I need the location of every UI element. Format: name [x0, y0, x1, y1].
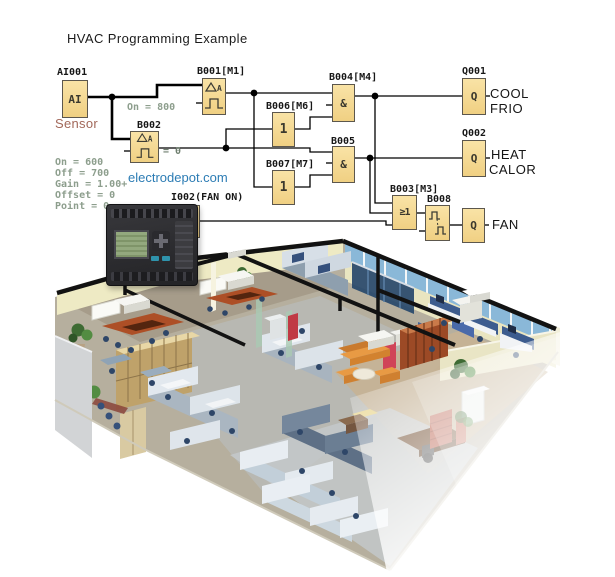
block-b004: &: [332, 84, 355, 122]
block-label-b008: B008: [427, 194, 451, 205]
plc-controller-image: [106, 204, 198, 286]
ai-symbol: AI: [68, 93, 81, 106]
block-b005: &: [332, 146, 355, 183]
b002-param-point: Point = 0: [55, 201, 109, 212]
block-q001: Q: [462, 78, 486, 115]
output-symbol: Q: [470, 219, 477, 232]
analog-trigger-icon: A: [134, 132, 156, 162]
plc-dpad-keys: [152, 231, 170, 251]
b002-annotation: = 0: [163, 146, 181, 157]
fan-caption: FAN: [492, 217, 519, 232]
analog-trigger-icon: A: [203, 81, 225, 113]
plants: [69, 267, 476, 427]
b001-parameter: On = 800: [127, 102, 175, 113]
block-ai001: AI: [62, 80, 88, 118]
pulse-relay-icon: [426, 206, 449, 240]
office-chairs: [98, 296, 520, 519]
block-label-q002: Q002: [462, 128, 486, 139]
block-b002: A: [130, 131, 159, 163]
cool-caption: COOL: [490, 86, 529, 101]
or-symbol: 1: [280, 122, 288, 137]
page-title: HVAC Programming Example: [67, 31, 248, 46]
output-symbol: Q: [471, 152, 478, 165]
b002-param-off: Off = 700: [55, 168, 109, 179]
block-label-b007: B007[M7]: [266, 159, 314, 170]
block-label-b002: B002: [137, 120, 161, 131]
watermark-text: electrodepot.com: [128, 170, 228, 185]
block-label-b004: B004[M4]: [329, 72, 377, 83]
plc-esc-key: [151, 256, 159, 261]
block-label-b001: B001[M1]: [197, 66, 245, 77]
block-label-i002: I002(FAN ON): [171, 192, 243, 203]
svg-text:A: A: [147, 134, 152, 143]
block-q-fan: Q: [462, 208, 485, 243]
block-b003: ≥1: [392, 195, 417, 230]
b002-param-on: On = 600: [55, 157, 103, 168]
calor-caption: CALOR: [489, 162, 536, 177]
hvac-programming-screenshot: HVAC Programming Example AI001 AI Sensor…: [0, 0, 615, 577]
b002-param-offset: Offset = 0: [55, 190, 115, 201]
plc-side-terminals: [175, 221, 193, 269]
output-symbol: Q: [471, 90, 478, 103]
b002-param-gain: Gain = 1.00+: [55, 179, 127, 190]
block-label-ai001: AI001: [57, 67, 87, 78]
and-symbol: &: [340, 158, 347, 171]
block-b007: 1: [272, 170, 295, 205]
block-label-q001: Q001: [462, 66, 486, 77]
svg-text:A: A: [217, 84, 222, 93]
sensor-caption: Sensor: [55, 116, 98, 131]
window-mullions: [364, 250, 550, 346]
and-symbol: &: [340, 97, 347, 110]
or-symbol: 1: [280, 180, 288, 195]
block-b001: A: [202, 78, 226, 115]
block-b006: 1: [272, 112, 295, 147]
block-b008: [425, 205, 450, 241]
or-gte-symbol: ≥1: [399, 207, 409, 218]
plc-lcd-screen: [114, 230, 149, 259]
plc-bottom-terminals: [111, 272, 193, 281]
block-q002: Q: [462, 140, 486, 177]
frio-caption: FRIO: [490, 101, 523, 116]
plc-ok-key: [162, 256, 170, 261]
plc-top-terminals: [111, 209, 193, 218]
block-label-b006: B006[M6]: [266, 101, 314, 112]
heat-caption: HEAT: [491, 147, 527, 162]
